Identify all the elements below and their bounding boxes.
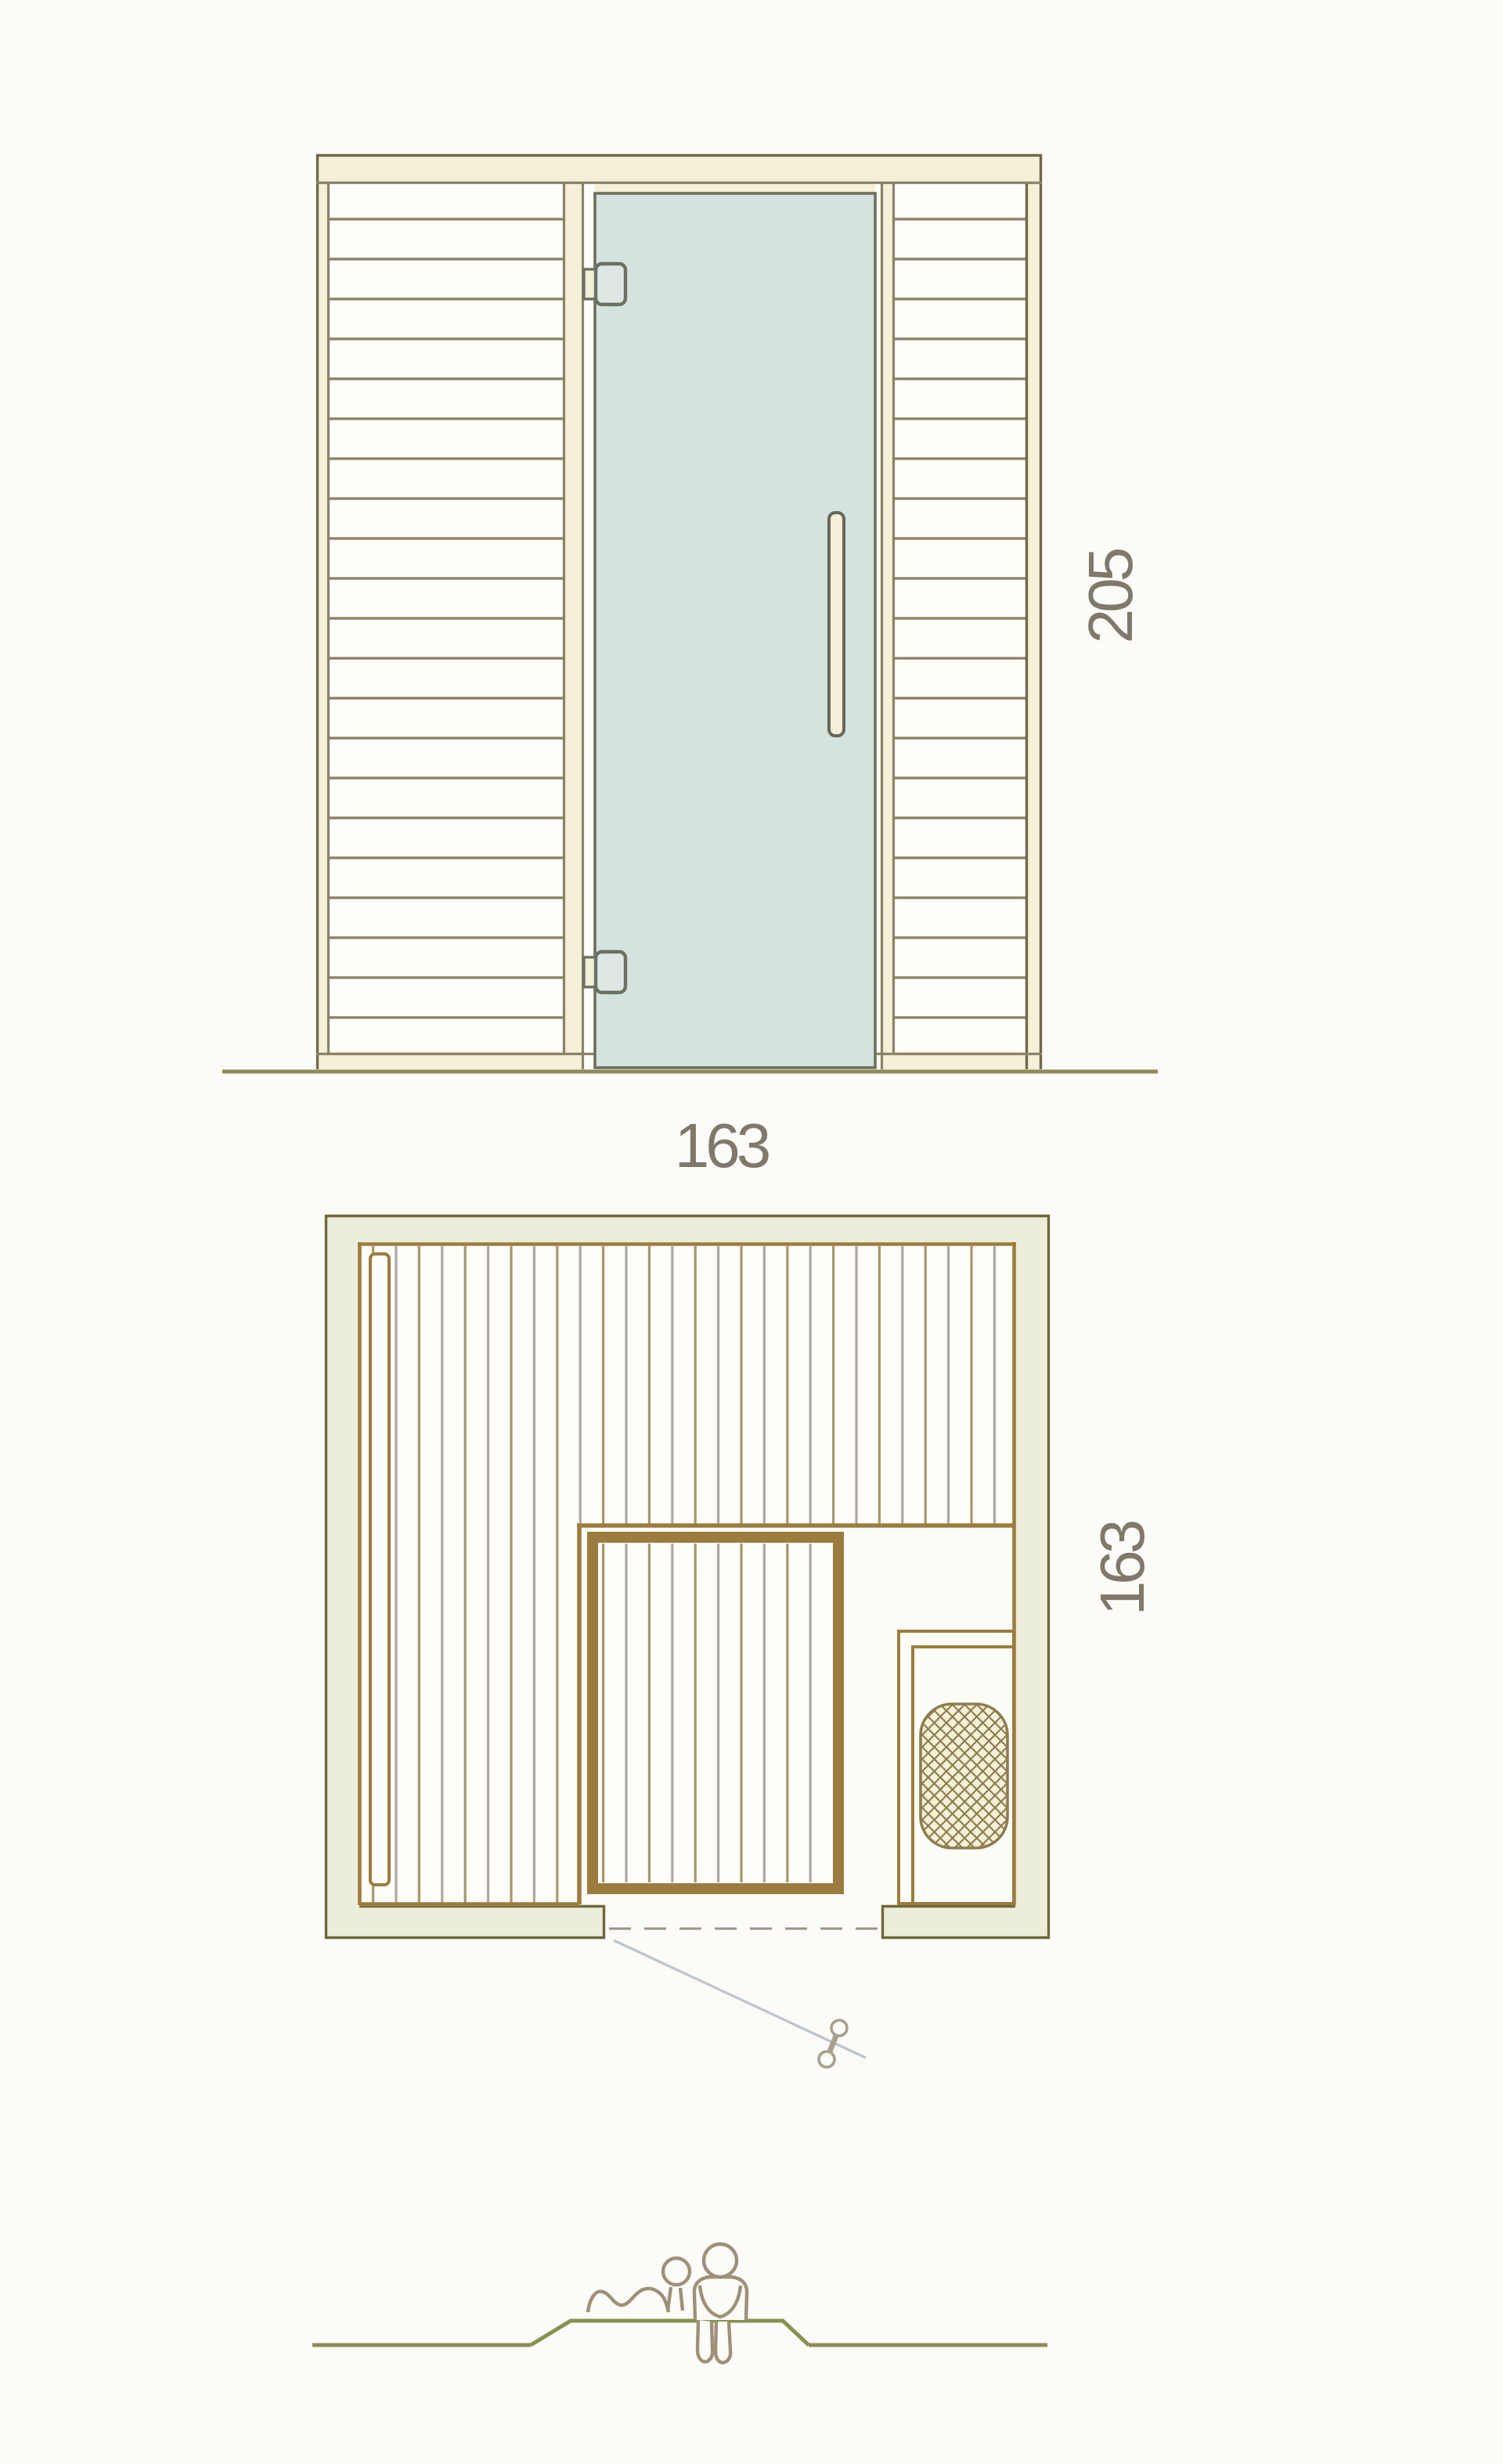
svg-text:163: 163 (675, 1111, 769, 1180)
svg-text:163: 163 (1087, 1522, 1157, 1616)
svg-text:205: 205 (1076, 549, 1145, 643)
